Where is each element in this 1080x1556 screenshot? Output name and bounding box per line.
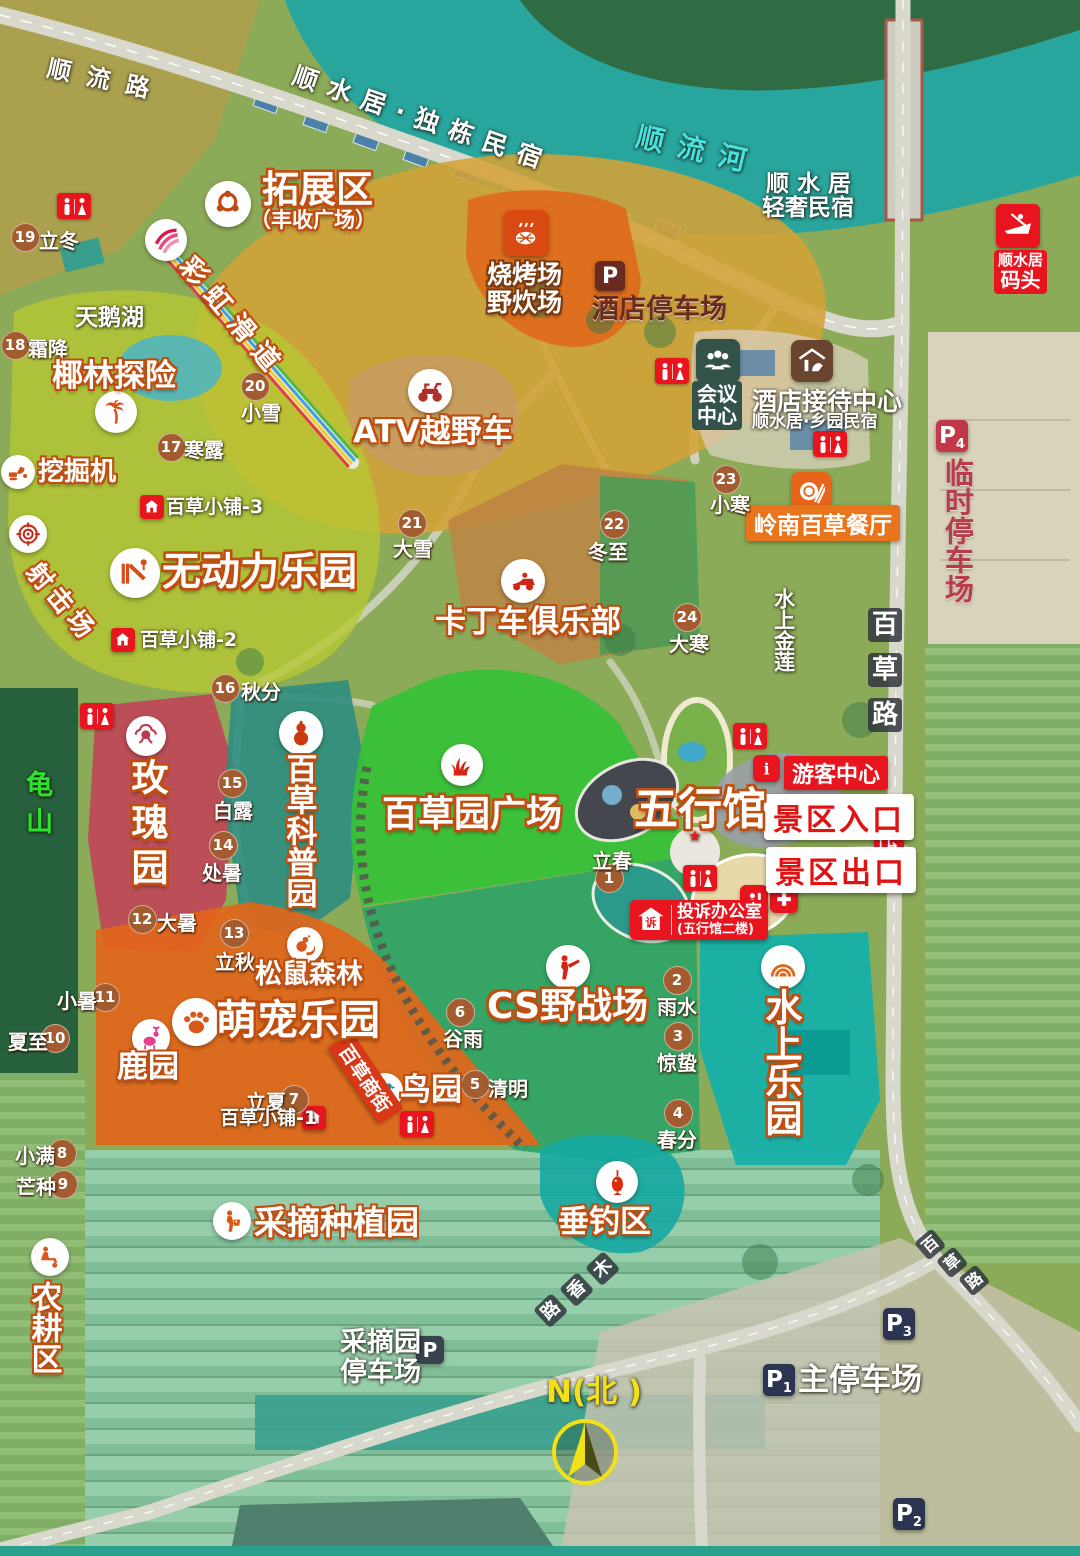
solar-term-16-label: 秋分	[241, 676, 281, 705]
poi-shuishang-jinlian: 水上金莲	[772, 588, 795, 672]
zone-shuishang-leyuan: 水上乐园	[760, 988, 800, 1136]
male-icon	[406, 1116, 414, 1133]
zone-mengchong-leyuan: 萌宠乐园	[216, 998, 380, 1042]
poi-hotel-reception-sub: 顺水居·乡园民宿	[752, 413, 877, 431]
complaint-office-badge: 诉 投诉办公室 (五行馆二楼)	[630, 900, 768, 940]
male-icon	[661, 363, 669, 380]
shop-label-百草小铺-3: 百草小铺-3	[166, 497, 263, 518]
zone-wudongli-leyuan: 无动力乐园	[162, 552, 357, 594]
plaza-grass-icon	[441, 744, 483, 786]
female-icon	[101, 708, 109, 725]
male-icon	[86, 708, 94, 725]
pier-boat-icon	[996, 204, 1040, 248]
solar-term-3-label: 惊蛰	[657, 1047, 697, 1076]
zone-nonggeng-qu: 农耕区	[26, 1281, 59, 1374]
solar-term-13-circle: 13	[220, 919, 249, 948]
svg-text:i: i	[764, 760, 770, 778]
poi-picking-parking-2: 停车场	[340, 1358, 421, 1387]
poi-wajueji: 挖掘机	[38, 458, 116, 486]
poi-guishan: 龟山	[22, 770, 51, 844]
road-baicaolu-east-char-2: 草	[868, 653, 902, 687]
poi-niaoyuan: 鸟园	[400, 1074, 462, 1107]
restroom-icon-4	[80, 703, 114, 729]
shop-house-icon-2	[111, 628, 135, 652]
parking-p3: P3	[883, 1308, 915, 1340]
female-icon	[421, 1116, 429, 1133]
zone-kadingche-julebu: 卡丁车俱乐部	[435, 606, 621, 639]
solar-term-23-label: 小寒	[710, 489, 750, 518]
farmland-rows	[925, 644, 1080, 1264]
restroom-icon-7	[400, 1111, 434, 1137]
parking-p2: P2	[893, 1498, 925, 1530]
atv-icon	[408, 369, 452, 413]
rainbow-slide-icon	[145, 219, 187, 261]
poi-picking-parking-1: 采摘园	[340, 1328, 421, 1357]
poi-tianehu: 天鹅湖	[75, 306, 144, 331]
male-icon	[819, 436, 827, 453]
solar-term-6-label: 谷雨	[443, 1023, 483, 1052]
solar-term-17-label: 寒露	[184, 434, 224, 463]
female-icon	[676, 363, 684, 380]
solar-term-13-label: 立秋	[215, 946, 255, 975]
solar-term-17-circle: 17	[157, 433, 186, 462]
restaurant-label: 岭南百草餐厅	[746, 505, 900, 541]
zone-tuozhanqu: 拓展区	[262, 170, 373, 210]
shooting-range-icon	[9, 515, 47, 553]
zone-chuidiao-qu: 垂钓区	[558, 1206, 651, 1239]
zone-songshu-senlin: 松鼠森林	[255, 960, 363, 989]
zone-meigui-yuan: 玫瑰园	[126, 758, 166, 893]
solar-term-9-label: 芒种	[16, 1171, 56, 1200]
poi-luyuan: 鹿园	[117, 1051, 179, 1084]
poi-hotel-parking-label: 酒店停车场	[592, 295, 727, 324]
cs-battle-icon	[546, 945, 590, 989]
shop-label-百草小铺-1: 百草小铺-1	[220, 1108, 317, 1129]
zone-caizhai-zhongzhiyuan: 采摘种植园	[254, 1205, 419, 1241]
female-icon	[834, 436, 842, 453]
restroom-icon-1	[57, 193, 91, 219]
poi-main-parking-label: 主停车场	[798, 1364, 922, 1397]
complaint-house-icon: 诉	[636, 905, 666, 935]
svg-text:诉: 诉	[645, 915, 656, 929]
solar-term-10-label: 夏至	[8, 1026, 48, 1055]
shop-house-icon-1	[140, 495, 164, 519]
wuxing-star: ★	[688, 828, 701, 844]
restroom-icon-2	[655, 358, 689, 384]
visitor-center-label: 游客中心	[784, 756, 888, 790]
solar-term-15-circle: 15	[218, 769, 247, 798]
pier-label: 顺水居 码头	[994, 250, 1047, 294]
male-icon	[739, 728, 747, 745]
solar-term-21-label: 大雪	[393, 533, 433, 562]
female-icon	[704, 870, 712, 887]
restroom-icon-3	[813, 431, 847, 457]
male-icon	[689, 870, 697, 887]
solar-term-5-circle: 5	[461, 1070, 490, 1099]
zone-baicaoyuan-guangchang: 百草园广场	[382, 796, 562, 835]
solar-term-16-circle: 16	[211, 674, 240, 703]
solar-term-4-label: 春分	[657, 1124, 697, 1153]
farming-zone-icon	[31, 1238, 69, 1276]
poi-temp-parking-label: 临时停车场	[941, 458, 972, 603]
solar-term-19-label: 立冬	[39, 225, 79, 254]
solar-term-24-label: 大寒	[669, 628, 709, 657]
solar-term-1-label: 立春	[592, 845, 632, 874]
meeting-center-label: 会议 中心	[692, 381, 742, 430]
restroom-icon-6	[683, 865, 717, 891]
water-park-icon	[761, 945, 805, 989]
poi-hotel-reception: 酒店接待中心	[752, 388, 902, 415]
solar-term-15-label: 白露	[213, 795, 253, 824]
zone-tuozhanqu-sub: （丰收广场）	[250, 209, 376, 232]
parking-p4: P4	[936, 420, 968, 452]
male-icon	[63, 198, 71, 215]
solar-term-8-label: 小满	[15, 1140, 55, 1169]
parking-hotel: P	[595, 261, 625, 291]
female-icon	[754, 728, 762, 745]
turtle-mountain	[0, 688, 78, 1073]
solar-term-11-label: 小暑	[57, 985, 97, 1014]
pet-park-icon	[172, 998, 220, 1046]
herb-garden-icon	[279, 711, 323, 755]
slide-park-icon	[110, 548, 160, 598]
solar-term-14-circle: 14	[209, 831, 238, 860]
female-icon	[78, 198, 86, 215]
picking-garden-icon	[213, 1202, 251, 1240]
zone-yechuichang: 野炊场	[487, 289, 562, 316]
park-guide-map: i 游客中心 景区入口 景区出口 顺水居 码头 会议 中心 岭南百草餐厅 诉 投…	[0, 0, 1080, 1556]
road-baicaolu-east-char-1: 百	[868, 608, 902, 642]
hotel-reception-icon	[791, 340, 833, 382]
palm-adventure-icon	[95, 391, 137, 433]
solar-term-22-circle: 22	[600, 510, 629, 539]
poi-qingshe-minsu-2: 轻奢民宿	[762, 196, 854, 221]
solar-term-14-label: 处暑	[202, 857, 242, 886]
solar-term-5-label: 清明	[488, 1073, 528, 1102]
zone-yelin-tanxian: 椰林探险	[52, 360, 176, 393]
restroom-icon-5	[733, 723, 767, 749]
rose-garden-icon	[126, 716, 166, 756]
parking-p1: P1	[763, 1364, 795, 1396]
solar-term-22-label: 冬至	[588, 536, 628, 565]
solar-term-20-label: 小雪	[241, 397, 281, 426]
compass	[550, 1417, 620, 1487]
zone-atv-yueyeche: ATV越野车	[353, 416, 513, 449]
solar-term-12-circle: 12	[128, 905, 157, 934]
solar-term-18-circle: 18	[1, 331, 30, 360]
solar-term-12-label: 大暑	[157, 907, 197, 936]
zone-baicao-kepu-yuan: 百草科普园	[281, 753, 314, 908]
fishing-icon	[596, 1161, 638, 1203]
road-baicaolu-east-char-3: 路	[868, 698, 902, 732]
scenic-exit-label: 景区出口	[766, 847, 916, 893]
excavator-icon	[1, 455, 35, 489]
gokart-icon	[501, 559, 545, 603]
zone-cs-yezhanchang: CS野战场	[487, 988, 648, 1027]
solar-term-19-circle: 19	[11, 223, 40, 252]
bbq-icon	[503, 210, 549, 256]
expansion-icon	[205, 181, 251, 227]
zone-shaokaochang: 烧烤场	[487, 261, 562, 288]
solar-term-2-label: 雨水	[657, 991, 697, 1020]
squirrel-forest-icon	[287, 927, 323, 963]
compass-label: N(北 )	[546, 1376, 642, 1409]
meeting-center-icon	[696, 339, 740, 383]
scenic-entrance-label: 景区入口	[764, 794, 914, 840]
shop-label-百草小铺-2: 百草小铺-2	[140, 630, 237, 651]
poi-qingshe-minsu-1: 顺 水 居	[766, 172, 851, 197]
info-icon: i	[753, 755, 780, 782]
